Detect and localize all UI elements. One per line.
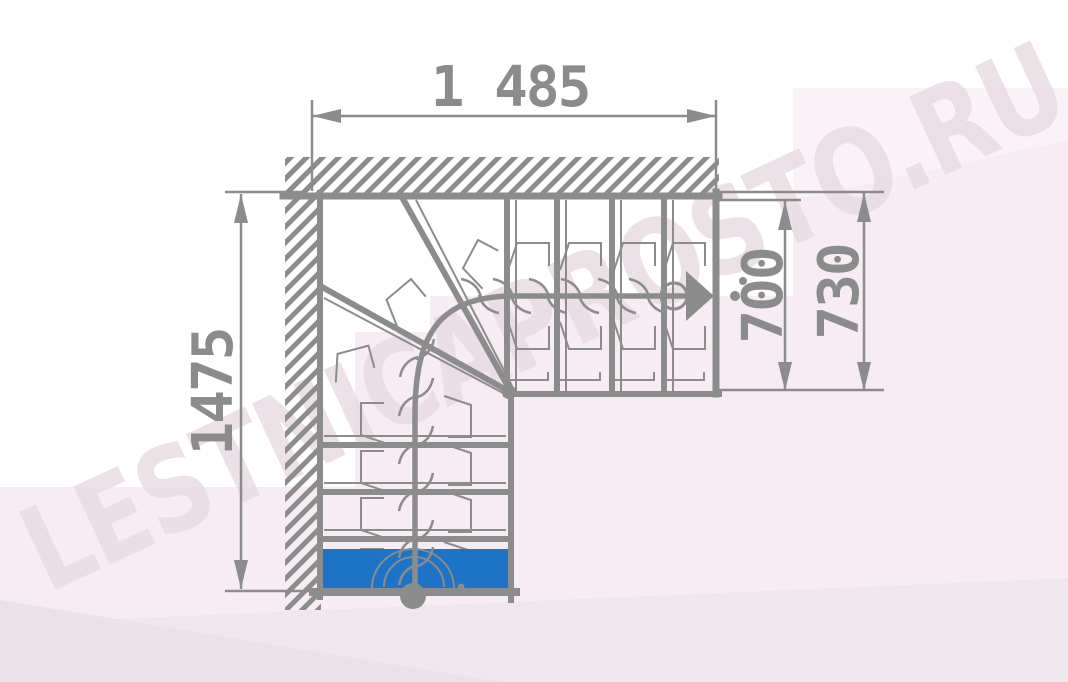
arrow-outer-top (857, 193, 871, 222)
winder-bracket (380, 279, 429, 326)
winder-bracket (459, 240, 502, 289)
tread-nosing-dashes (506, 372, 704, 380)
winder-bracket (329, 346, 376, 383)
wall-hatching (285, 157, 719, 610)
winder-corner-node (502, 385, 516, 399)
tread-bracket (664, 243, 705, 270)
tread-bracket (508, 322, 549, 349)
dimension-top-label: 1 485 (431, 55, 590, 120)
stair-plan-drawing: 1 485 1475 700 730 (0, 0, 1068, 682)
tread-bracket (444, 396, 471, 437)
tread-bracket (444, 444, 471, 485)
top-wall-hatch (285, 157, 719, 194)
arrow-top-right (687, 109, 716, 123)
tread-bracket (444, 491, 471, 532)
nosing-dash (558, 372, 600, 380)
walk-line-arrowhead (686, 271, 714, 321)
arrow-outer-bottom (857, 362, 871, 391)
dimension-right-inner-label: 700 (731, 248, 796, 343)
arrow-inner-bottom (778, 362, 792, 391)
tread-bracket (361, 403, 388, 444)
dimension-right-outer-label: 730 (807, 244, 872, 339)
stair-plan-page: LESTNICAPROSTO.RU (0, 0, 1068, 682)
tread-bracket (664, 322, 705, 349)
tread-bracket (361, 498, 388, 539)
arrow-top-left (312, 109, 341, 123)
walk-line-start-circle (400, 583, 426, 609)
left-wall-hatch (285, 157, 321, 610)
nosing-dash (506, 372, 548, 380)
nosing-dash (662, 372, 704, 380)
tread-bracket (361, 451, 388, 492)
arrow-left-bottom (234, 560, 248, 589)
arrow-left-top (234, 194, 248, 223)
nosing-dash (612, 372, 654, 380)
dimension-left-label: 1475 (181, 329, 246, 456)
tread-bracket (508, 243, 549, 270)
arrow-inner-top (778, 201, 792, 230)
winder-edge-line (416, 200, 512, 386)
